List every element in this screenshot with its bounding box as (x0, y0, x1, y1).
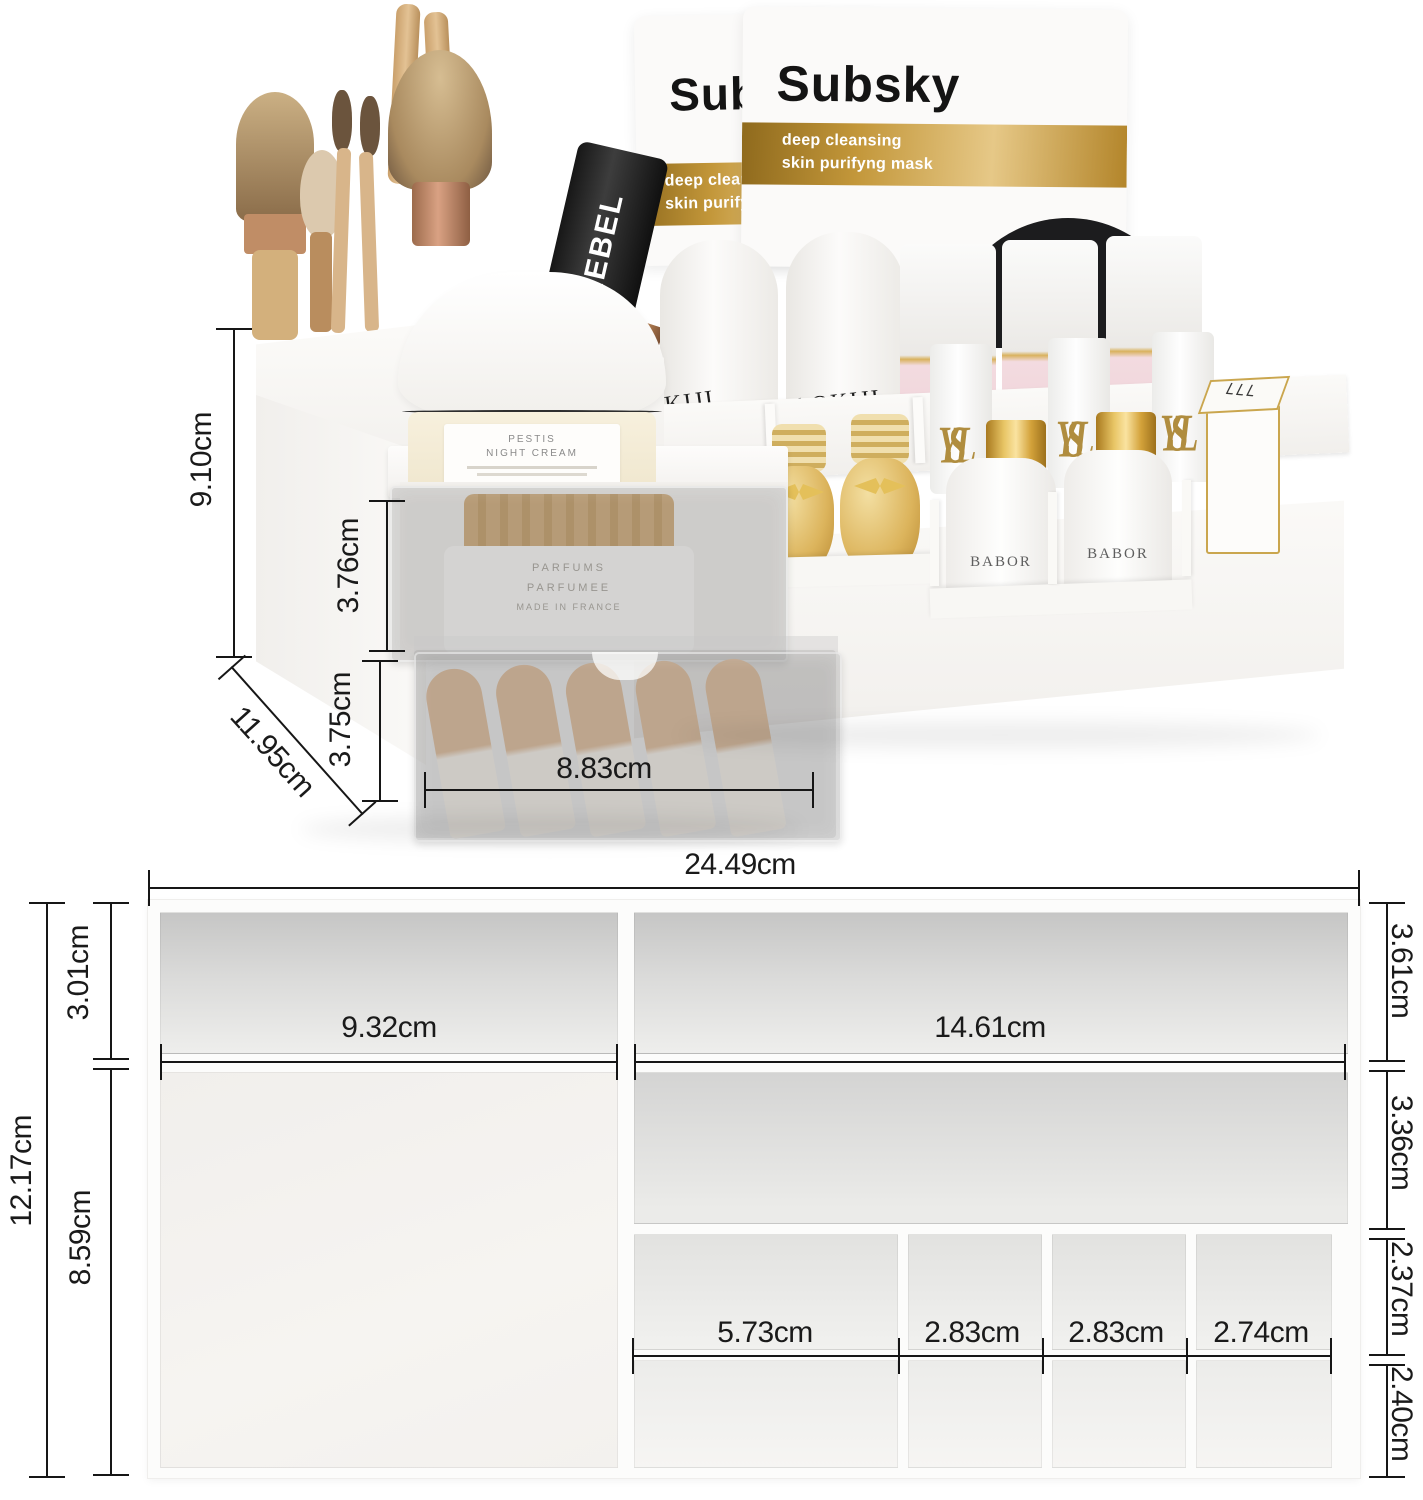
dim-line-left-back-depth (110, 902, 112, 1060)
dim-tick-column (1186, 1338, 1188, 1374)
serum-bottle: BABOR (1064, 450, 1172, 598)
dim-label-drawer-width: 8.83cm (556, 754, 651, 784)
drawer2-acrylic-front (414, 652, 842, 842)
dim-label-drawer2-height: 3.75cm (326, 672, 356, 767)
dim-label-right-row4-depth: 2.40cm (1386, 1366, 1416, 1461)
dim-label-left-width: 9.32cm (341, 1013, 436, 1043)
serum-brand-text: BABOR (1064, 546, 1172, 563)
diagram-cell-row4-col2 (908, 1360, 1042, 1468)
dim-label-col4: 2.74cm (1213, 1318, 1308, 1348)
dim-tick-column (1042, 1338, 1044, 1374)
dim-label-col1: 5.73cm (717, 1318, 812, 1348)
top-view-diagram (148, 900, 1360, 1478)
liner-brush-tip (332, 90, 352, 152)
ribbed-cap (851, 414, 909, 464)
jar-label-line2: NIGHT CREAM (444, 448, 620, 459)
liner-brush-tip (360, 96, 380, 156)
dim-label-col2: 2.83cm (924, 1318, 1019, 1348)
dim-label-left-back-depth: 3.01cm (64, 925, 94, 1020)
case-top-face: LLL (1198, 376, 1290, 414)
dim-line-drawer-width (424, 789, 814, 791)
drawer-handle-notch (592, 652, 658, 680)
dim-line-total-height (233, 328, 235, 658)
jar-label-fineprint (467, 466, 597, 469)
amber-perfume-bottle (840, 414, 920, 576)
dim-label-right-row3-depth: 2.37cm (1386, 1241, 1416, 1336)
dim-label-col3: 2.83cm (1068, 1318, 1163, 1348)
product-infographic: Subsky deep cleansing skin purifyng mask… (0, 0, 1423, 1500)
ysl-monogram-text: YSL (1160, 406, 1187, 465)
product-photo: Subsky deep cleansing skin purifyng mask… (0, 0, 1423, 845)
dim-line-drawer2-height (379, 660, 381, 802)
dim-label-right-mid-depth: 3.36cm (1386, 1095, 1416, 1190)
flat-brush-ferrule (244, 214, 306, 254)
compartment-divider (930, 500, 939, 586)
gold-edge-lipstick-case: LLL (1206, 404, 1280, 554)
jar-label-line1: PESTIS (444, 434, 620, 445)
dim-line-overall-width (148, 887, 1360, 889)
diagram-cell-row4-col1 (634, 1360, 898, 1468)
jar-label: PESTIS NIGHT CREAM (444, 424, 620, 488)
diagram-cell-right-middle (634, 1072, 1348, 1224)
mask-brand-text: Subsky (776, 55, 960, 115)
dim-line-overall-depth (46, 902, 48, 1478)
night-cream-jar: PESTIS NIGHT CREAM (398, 272, 666, 500)
dim-line-right-width (634, 1061, 1346, 1063)
diagram-cell-row4-col3 (1052, 1360, 1186, 1468)
dim-label-right-back-depth: 3.61cm (1386, 923, 1416, 1018)
mask-line2: skin purifyng mask (782, 155, 933, 174)
dim-label-total-height: 9.10cm (187, 412, 217, 507)
powder-brush-ferrule (412, 182, 470, 246)
ground-shadow (680, 722, 1320, 748)
dim-line-front-columns (632, 1355, 1332, 1357)
case-mark-text: LLL (1222, 381, 1262, 402)
compartment-divider (1048, 492, 1057, 584)
diagram-cell-left-main (160, 1072, 618, 1468)
diagram-cell-row4-col4 (1196, 1360, 1332, 1468)
dim-label-overall-depth: 12.17cm (7, 1115, 37, 1227)
flat-brush-handle (252, 250, 298, 340)
mask-gold-band: deep cleansing skin purifyng mask (742, 122, 1128, 187)
dim-line-left-main-depth (110, 1068, 112, 1476)
dim-label-overall-width: 24.49cm (684, 850, 796, 880)
serum-brand-text: BABOR (946, 554, 1056, 571)
dim-label-drawer1-height: 3.76cm (334, 518, 364, 613)
sponge-stick (310, 232, 332, 332)
jar-lid (398, 272, 666, 422)
dim-line-drawer1-height (386, 500, 388, 652)
ground-shadow (300, 816, 800, 842)
mask-line1: deep cleansing (782, 132, 902, 151)
dim-label-right-width: 14.61cm (934, 1013, 1046, 1043)
compartment-divider (1182, 480, 1191, 576)
dim-line-left-width (160, 1061, 618, 1063)
dim-tick-column (898, 1338, 900, 1374)
liner-brush-handle (359, 152, 379, 332)
jar-label-fineprint (477, 473, 587, 476)
dim-label-left-main-depth: 8.59cm (66, 1190, 96, 1285)
